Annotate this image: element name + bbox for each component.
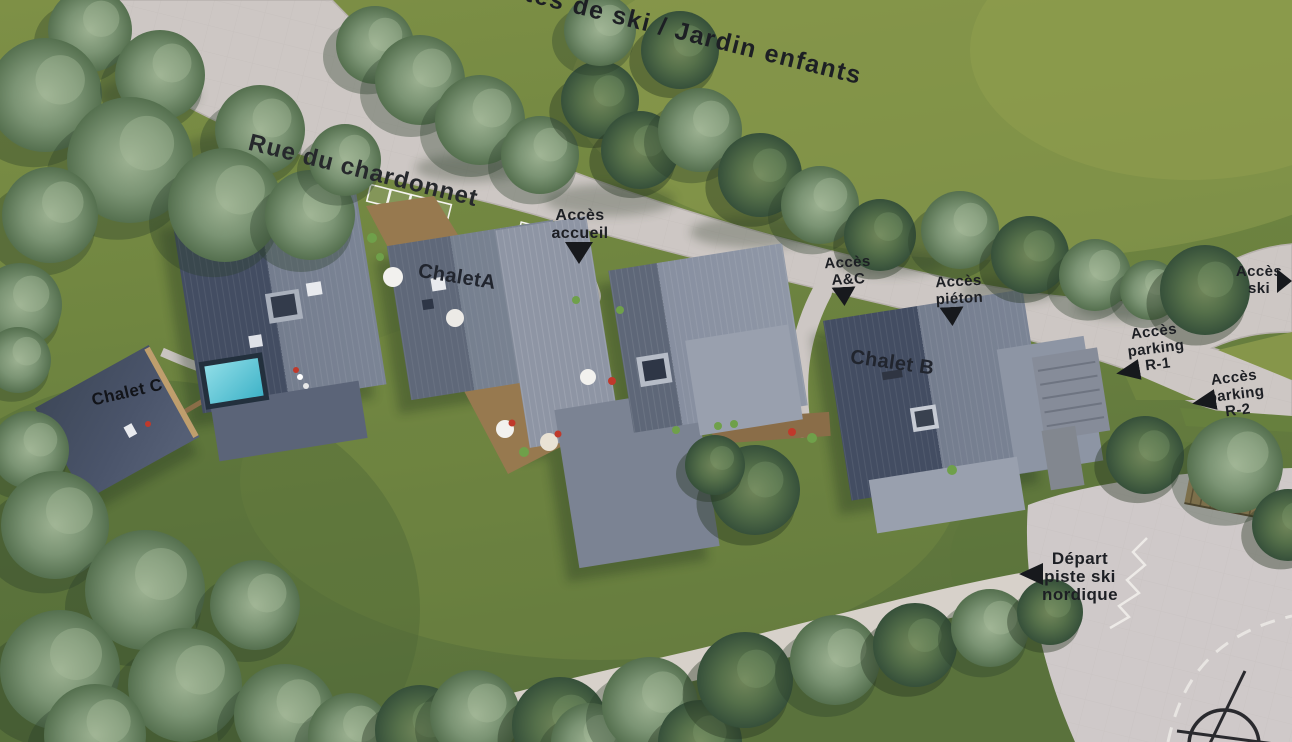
- site-plan-render: Pistes de ski / Jardin enfants Rue du ch…: [0, 0, 1292, 742]
- depart-nordique-label: Départ piste ski nordique: [1034, 550, 1126, 604]
- access-a-et-c-label: Accès A&C: [815, 253, 881, 289]
- access-ski-label: Accès ski: [1234, 264, 1284, 297]
- access-pieton-label: Accès piéton: [923, 272, 995, 309]
- pool: [199, 352, 270, 409]
- site-plan-graphic: [0, 0, 1292, 742]
- access-accueil-label: Accès accueil: [540, 207, 620, 242]
